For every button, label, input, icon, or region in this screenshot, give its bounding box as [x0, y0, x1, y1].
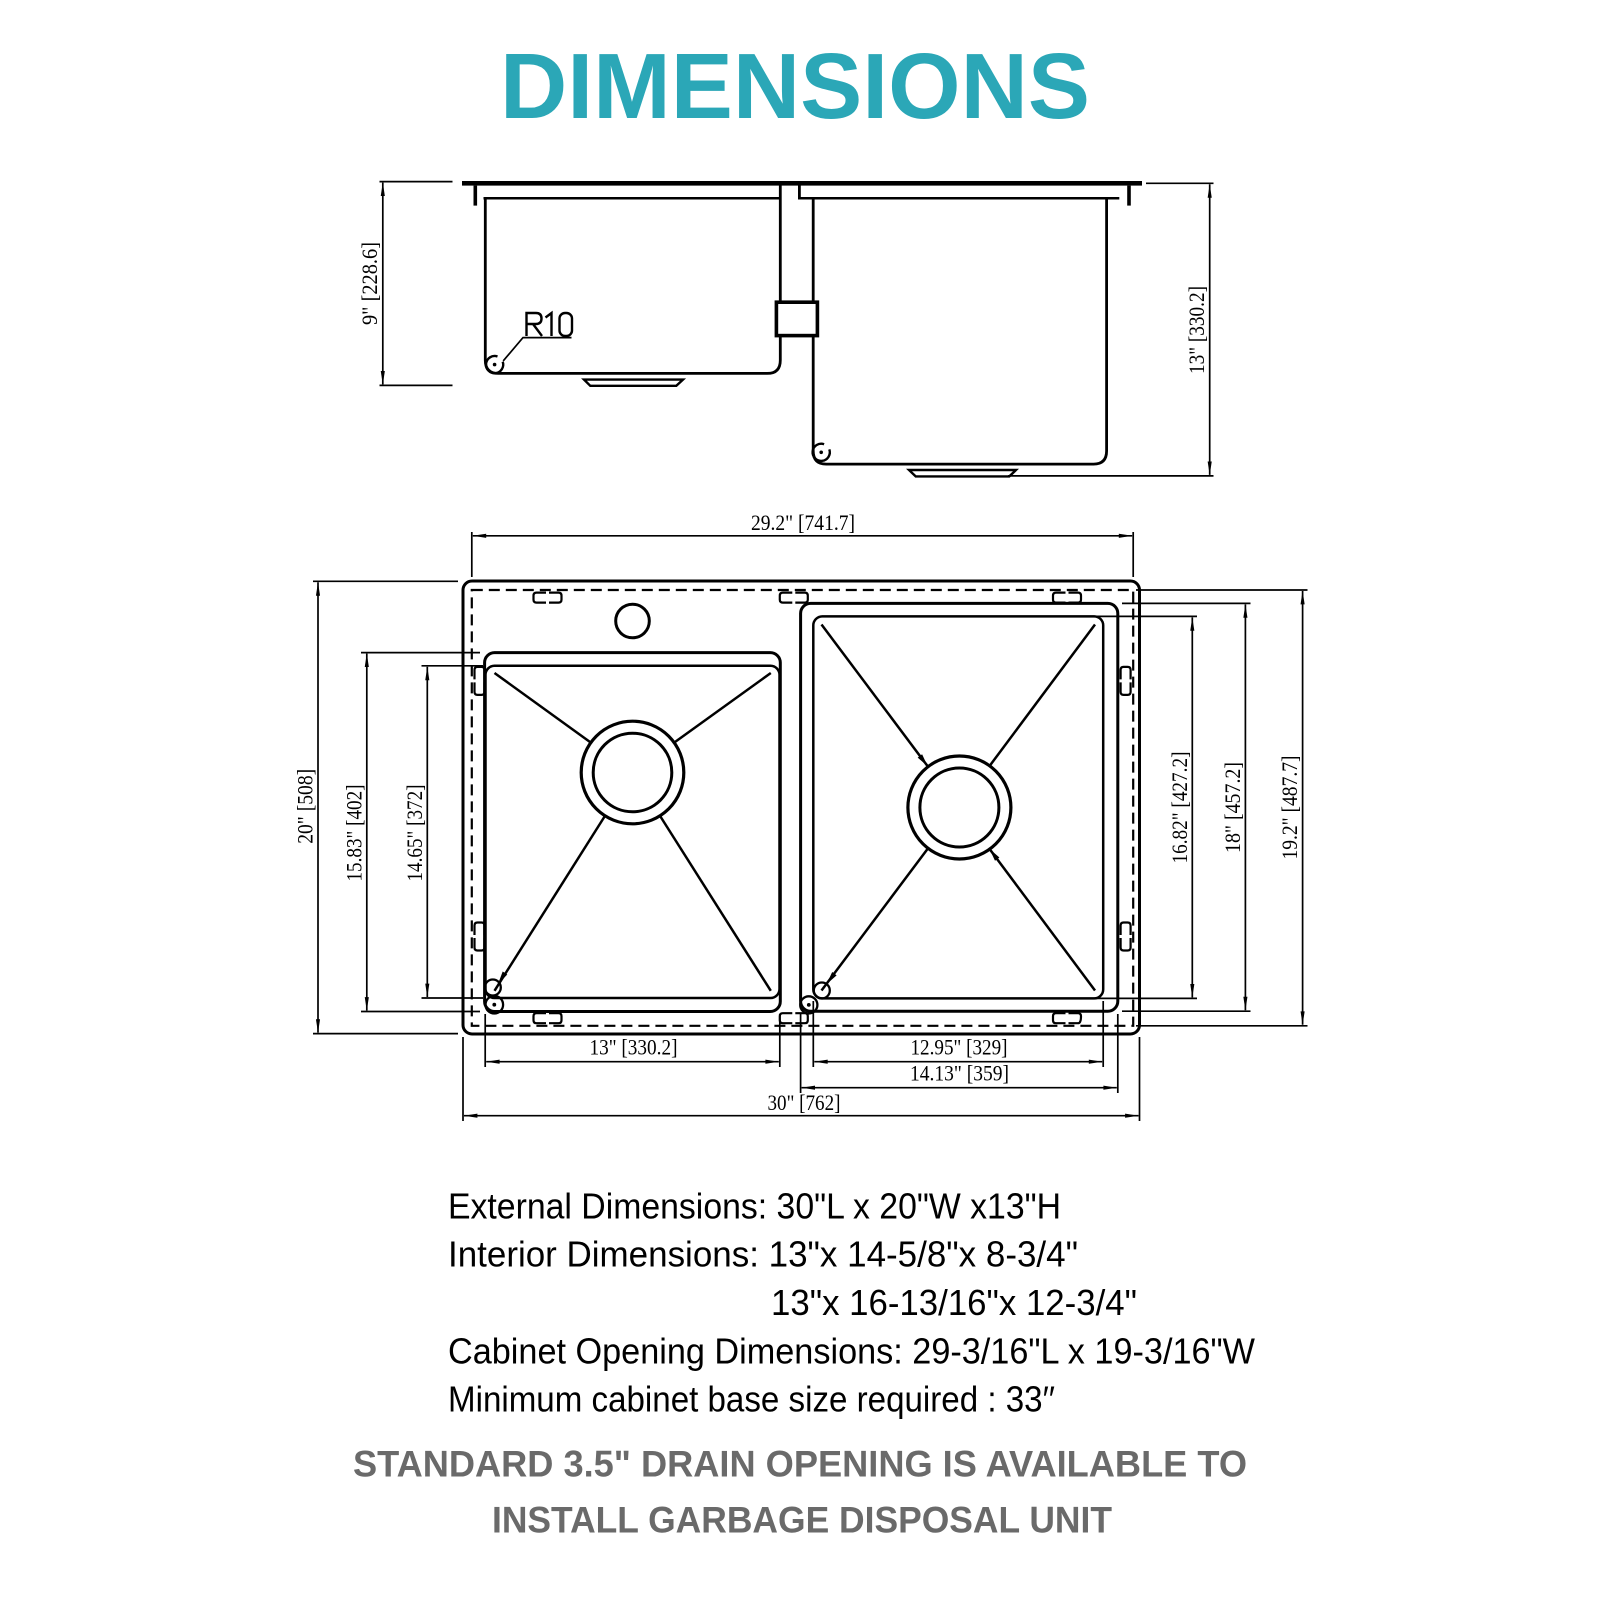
svg-text:DIMENSIONS: DIMENSIONS: [500, 34, 1090, 138]
svg-text:18" [457.2]: 18" [457.2]: [1220, 762, 1245, 853]
svg-text:13"x 16-13/16"x 12-3/4": 13"x 16-13/16"x 12-3/4": [771, 1282, 1137, 1323]
svg-text:14.13" [359]: 14.13" [359]: [910, 1061, 1009, 1086]
svg-text:20" [508]: 20" [508]: [293, 769, 318, 844]
svg-text:Interior Dimensions: 13"x 14-5: Interior Dimensions: 13"x 14-5/8"x 8-3/4…: [448, 1234, 1078, 1275]
svg-text:16.82" [427.2]: 16.82" [427.2]: [1167, 752, 1192, 864]
svg-text:13" [330.2]: 13" [330.2]: [590, 1035, 678, 1060]
svg-text:12.95" [329]: 12.95" [329]: [911, 1035, 1008, 1060]
svg-text:STANDARD 3.5" DRAIN OPENING IS: STANDARD 3.5" DRAIN OPENING IS AVAILABLE…: [353, 1443, 1247, 1485]
svg-text:External Dimensions: 30"L x 20: External Dimensions: 30"L x 20"W x13"H: [448, 1186, 1061, 1227]
svg-text:19.2" [487.7]: 19.2" [487.7]: [1277, 756, 1302, 860]
svg-text:INSTALL GARBAGE DISPOSAL UNIT: INSTALL GARBAGE DISPOSAL UNIT: [492, 1499, 1112, 1541]
svg-text:30" [762]: 30" [762]: [768, 1090, 841, 1115]
svg-text:Minimum cabinet base size requ: Minimum cabinet base size required : 33′…: [448, 1379, 1055, 1420]
svg-text:14.65" [372]: 14.65" [372]: [402, 785, 427, 882]
svg-text:13" [330.2]: 13" [330.2]: [1184, 286, 1209, 374]
svg-text:29.2" [741.7]: 29.2" [741.7]: [751, 510, 855, 535]
svg-text:9" [228.6]: 9" [228.6]: [357, 242, 382, 325]
svg-text:15.83" [402]: 15.83" [402]: [341, 785, 366, 882]
svg-text:Cabinet Opening Dimensions: 29: Cabinet Opening Dimensions: 29-3/16"L x …: [448, 1331, 1255, 1372]
